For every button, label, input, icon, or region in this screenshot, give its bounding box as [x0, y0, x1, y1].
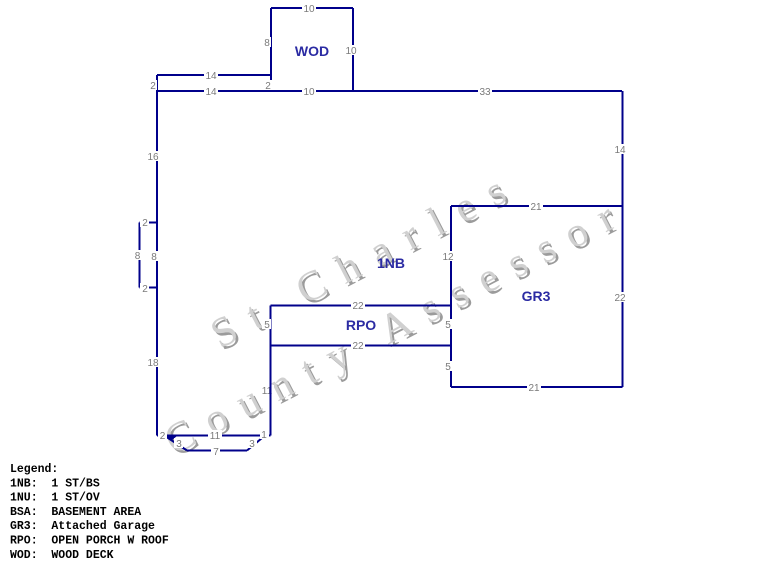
- svg-text:5: 5: [264, 320, 270, 331]
- svg-text:1NB: 1 ST/BS: 1NB: 1 ST/BS: [10, 477, 100, 490]
- svg-text:GR3: Attached Garage: GR3: Attached Garage: [10, 520, 155, 533]
- svg-text:16: 16: [147, 152, 159, 163]
- svg-text:8: 8: [264, 38, 270, 49]
- svg-text:WOD: WOD: [295, 43, 329, 59]
- svg-text:BSA: BASEMENT AREA: BSA: BASEMENT AREA: [10, 506, 141, 519]
- svg-text:2: 2: [265, 81, 271, 92]
- svg-text:2: 2: [142, 284, 148, 295]
- svg-text:14: 14: [205, 71, 217, 82]
- svg-text:11: 11: [210, 431, 221, 442]
- svg-text:WOD: WOOD DECK: WOD: WOOD DECK: [10, 549, 114, 562]
- svg-text:22: 22: [352, 341, 364, 352]
- svg-text:1NB: 1NB: [377, 255, 405, 271]
- svg-text:2: 2: [142, 218, 148, 229]
- svg-text:1: 1: [261, 430, 267, 441]
- svg-text:5: 5: [445, 320, 451, 331]
- svg-text:8: 8: [151, 252, 157, 263]
- svg-text:RPO: OPEN PORCH W ROOF: RPO: OPEN PORCH W ROOF: [10, 535, 169, 548]
- svg-text:10: 10: [345, 46, 357, 57]
- svg-text:10: 10: [303, 87, 315, 98]
- svg-text:8: 8: [135, 251, 141, 262]
- svg-text:2: 2: [150, 81, 156, 92]
- svg-text:21: 21: [530, 202, 542, 213]
- svg-text:RPO: RPO: [346, 317, 376, 333]
- svg-text:10: 10: [303, 4, 315, 15]
- svg-text:14: 14: [205, 87, 217, 98]
- svg-text:12: 12: [442, 252, 454, 263]
- svg-text:5: 5: [445, 362, 451, 373]
- svg-text:GR3: GR3: [522, 288, 551, 304]
- svg-text:3: 3: [176, 439, 182, 450]
- svg-text:3: 3: [249, 439, 255, 450]
- svg-text:7: 7: [213, 447, 219, 458]
- svg-text:Legend:: Legend:: [10, 463, 58, 476]
- svg-text:14: 14: [614, 145, 626, 156]
- svg-text:1NU: 1 ST/OV: 1NU: 1 ST/OV: [10, 492, 100, 505]
- svg-text:33: 33: [479, 87, 491, 98]
- svg-text:18: 18: [147, 358, 159, 369]
- svg-text:22: 22: [614, 293, 626, 304]
- svg-text:2: 2: [160, 431, 166, 442]
- svg-text:22: 22: [352, 301, 364, 312]
- svg-text:21: 21: [528, 383, 540, 394]
